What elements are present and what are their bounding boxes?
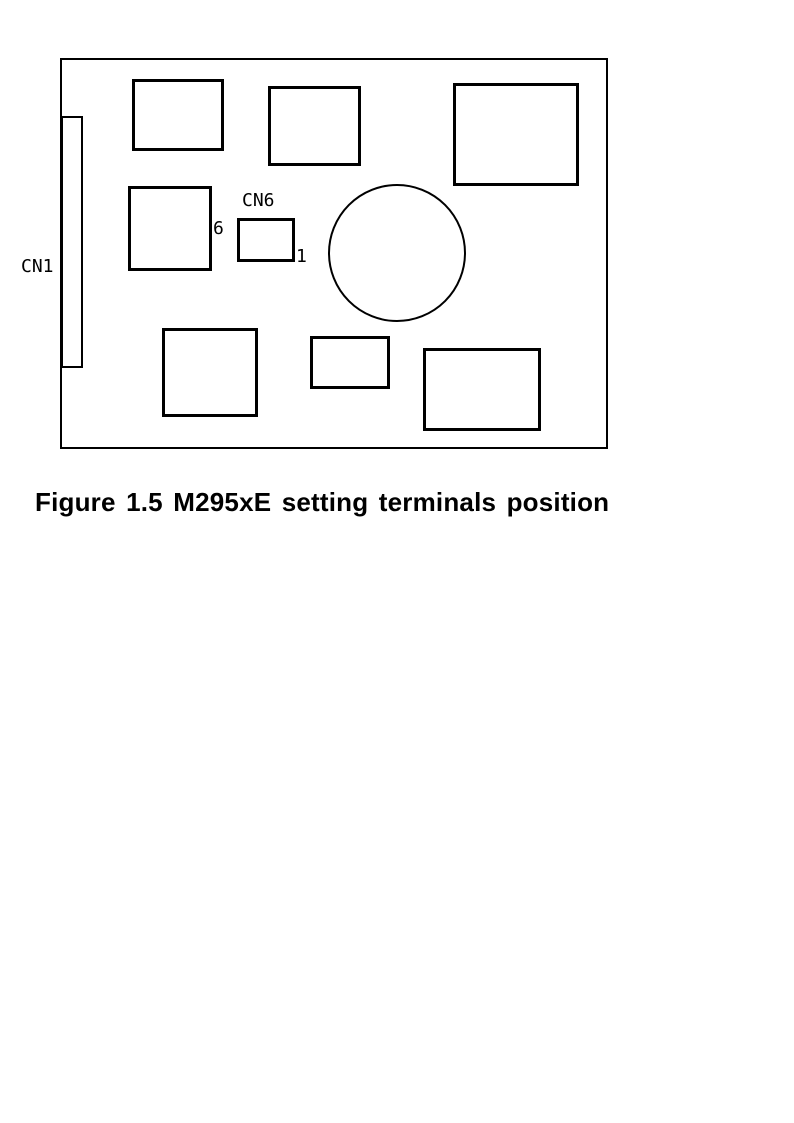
- figure-canvas: CN1 CN6 6 1: [0, 0, 794, 1123]
- cn1-connector-label: CN1: [21, 258, 54, 276]
- cn6-pin6-number: 6: [213, 220, 224, 238]
- document-page: CN1 CN6 6 1 Figure 1.5 M295xE setting te…: [0, 0, 794, 1123]
- figure-caption: Figure 1.5 M295xE setting terminals posi…: [35, 489, 609, 515]
- cn6-pin1-number: 1: [296, 248, 307, 266]
- board-outline: [60, 58, 608, 449]
- cn6-terminal-label: CN6: [242, 192, 275, 210]
